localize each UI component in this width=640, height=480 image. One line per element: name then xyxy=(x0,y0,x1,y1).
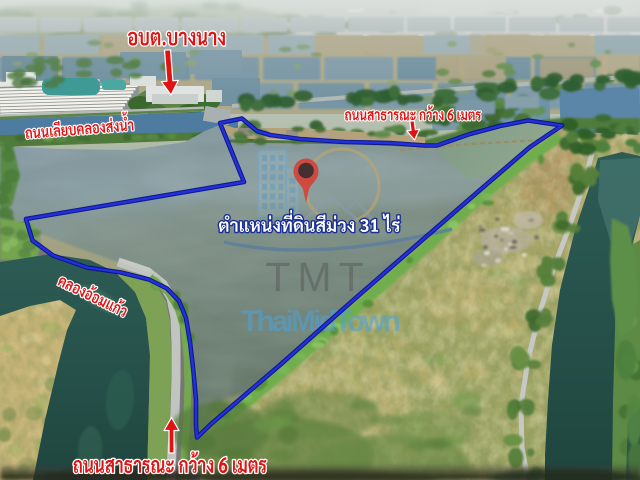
svg-text:TMT: TMT xyxy=(265,254,370,300)
svg-text:ThaiMidTown: ThaiMidTown xyxy=(241,305,401,338)
